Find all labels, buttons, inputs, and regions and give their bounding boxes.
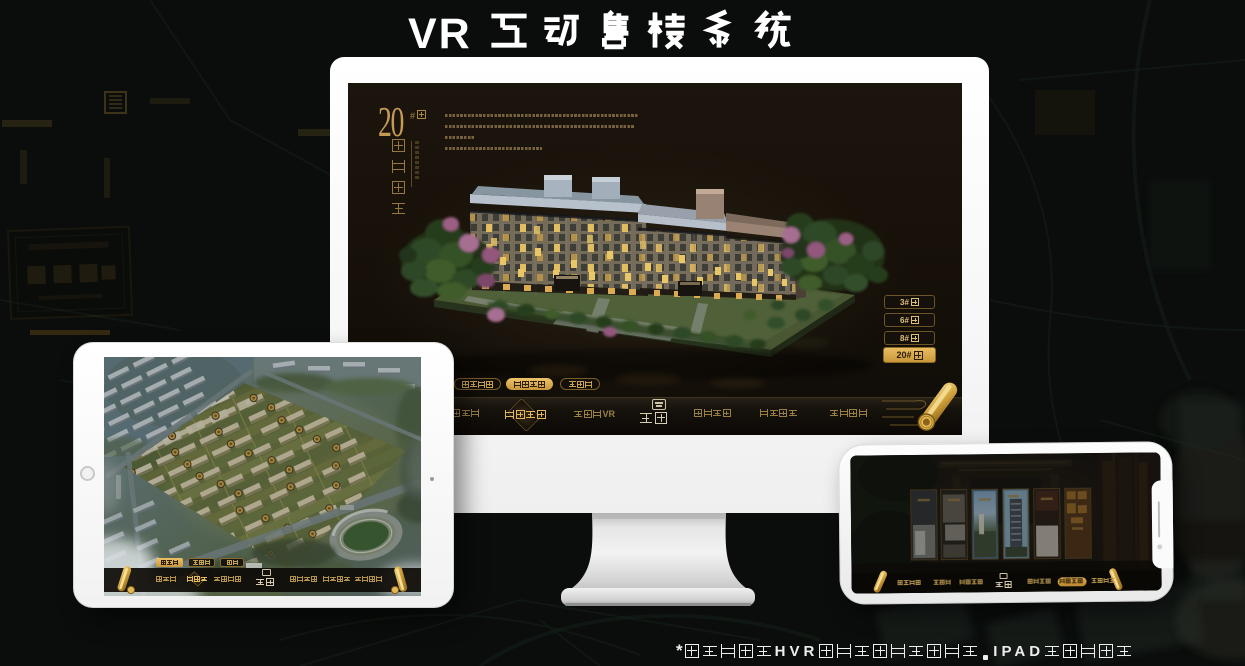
svg-text:VR: VR bbox=[408, 10, 472, 58]
